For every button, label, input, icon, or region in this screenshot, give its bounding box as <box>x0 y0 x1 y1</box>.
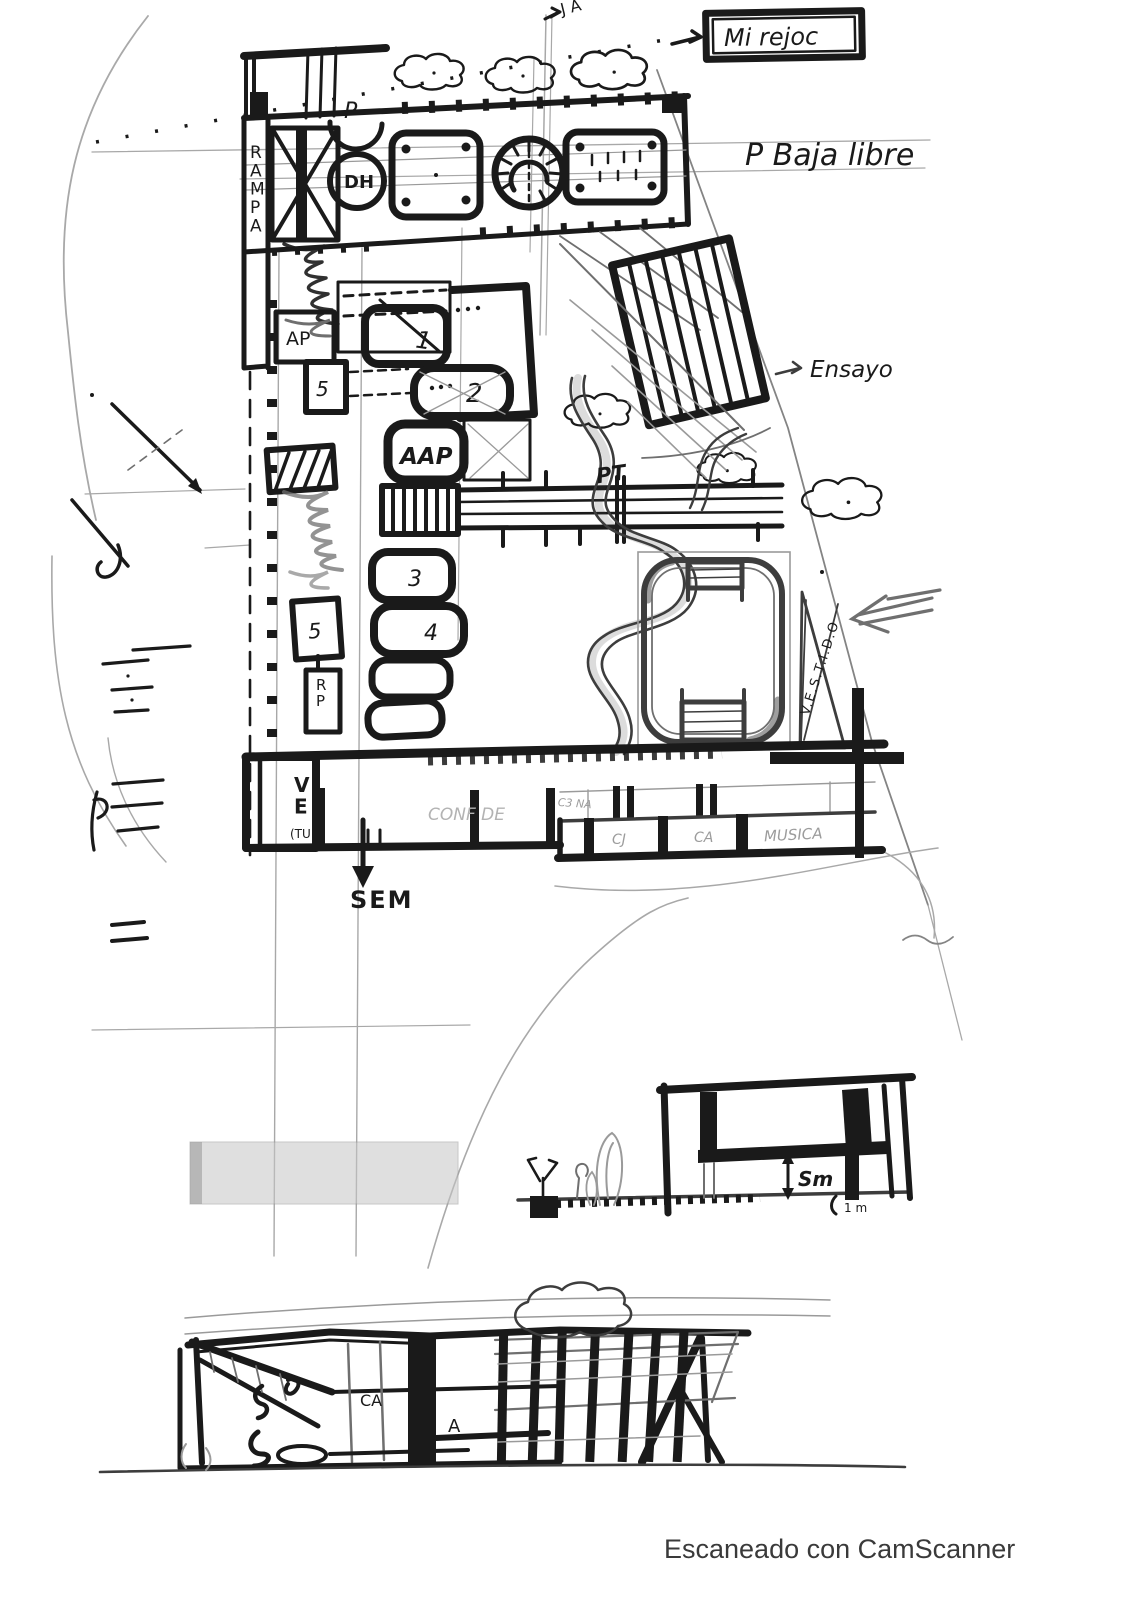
room-cj-label: CJ <box>612 832 626 848</box>
room-musica-label: MUSICA <box>764 824 823 845</box>
elevation-ca-label: CA <box>360 1391 382 1410</box>
shaded-block <box>190 1142 458 1204</box>
room-ca-label: CA <box>694 830 713 846</box>
strip-scrawl: C3 NA <box>557 796 592 811</box>
pt-label: PT <box>595 460 629 488</box>
room-ap-label: AP <box>286 328 310 350</box>
p-small-label: P <box>344 99 358 124</box>
ensayo-label: Ensayo <box>810 357 893 383</box>
room-aap-label: AAP <box>398 444 453 470</box>
dh-label: DH <box>344 172 374 193</box>
sketch-canvas: Mi rejoc P Baja libre J A <box>0 0 1130 1600</box>
confide-label: CONF DE <box>428 805 505 825</box>
elevation-a-label: A <box>448 1416 461 1437</box>
room-rp-label: RP <box>316 676 326 710</box>
room-4 <box>374 606 464 654</box>
left-margin-marks <box>72 393 202 941</box>
height-label: Sm <box>798 1167 833 1191</box>
room-blank-2 <box>367 700 443 738</box>
scanner-footer-note: Escaneado con CamScanner <box>664 1534 1015 1564</box>
goal-bottom <box>682 690 744 740</box>
room-4-label: 4 <box>424 621 438 646</box>
ramp-label: RAMPA <box>250 143 265 236</box>
base-label: 1 m <box>844 1201 867 1215</box>
tree-icon <box>395 54 464 90</box>
vestuario-sub-label: (TU <box>290 827 311 841</box>
annotation-box-label: Mi rejoc <box>724 22 819 52</box>
vestidos-wedge: V.E.S.T.I.D.O <box>798 570 845 748</box>
sports-field <box>638 552 790 748</box>
top-mark-label: J A <box>557 0 583 19</box>
tree-icon <box>571 50 647 89</box>
sem-annotation: SEM <box>350 820 414 914</box>
elevation-sketch: CA A <box>100 1283 905 1473</box>
tree-icon <box>802 478 881 519</box>
room-blank-1 <box>372 660 450 697</box>
strip-room-b <box>566 132 664 202</box>
room-1 <box>365 308 447 364</box>
section-sketch: Sm 1 m <box>518 1077 912 1218</box>
room-2-label: 2 <box>466 379 483 409</box>
floor-note-label: P Baja libre <box>745 138 914 173</box>
sem-label: SEM <box>350 886 414 914</box>
big-arrow-left <box>852 590 940 632</box>
parking-ticks <box>103 646 190 831</box>
spiral-stair <box>495 139 563 207</box>
room-5-lower-label: 5 <box>307 619 322 644</box>
vestuario-label: VE <box>294 773 310 819</box>
room-5-upper-label: 5 <box>316 377 329 401</box>
room-3-label: 3 <box>408 567 422 592</box>
scanned-sketch-page: Mi rejoc P Baja libre J A <box>0 0 1130 1600</box>
